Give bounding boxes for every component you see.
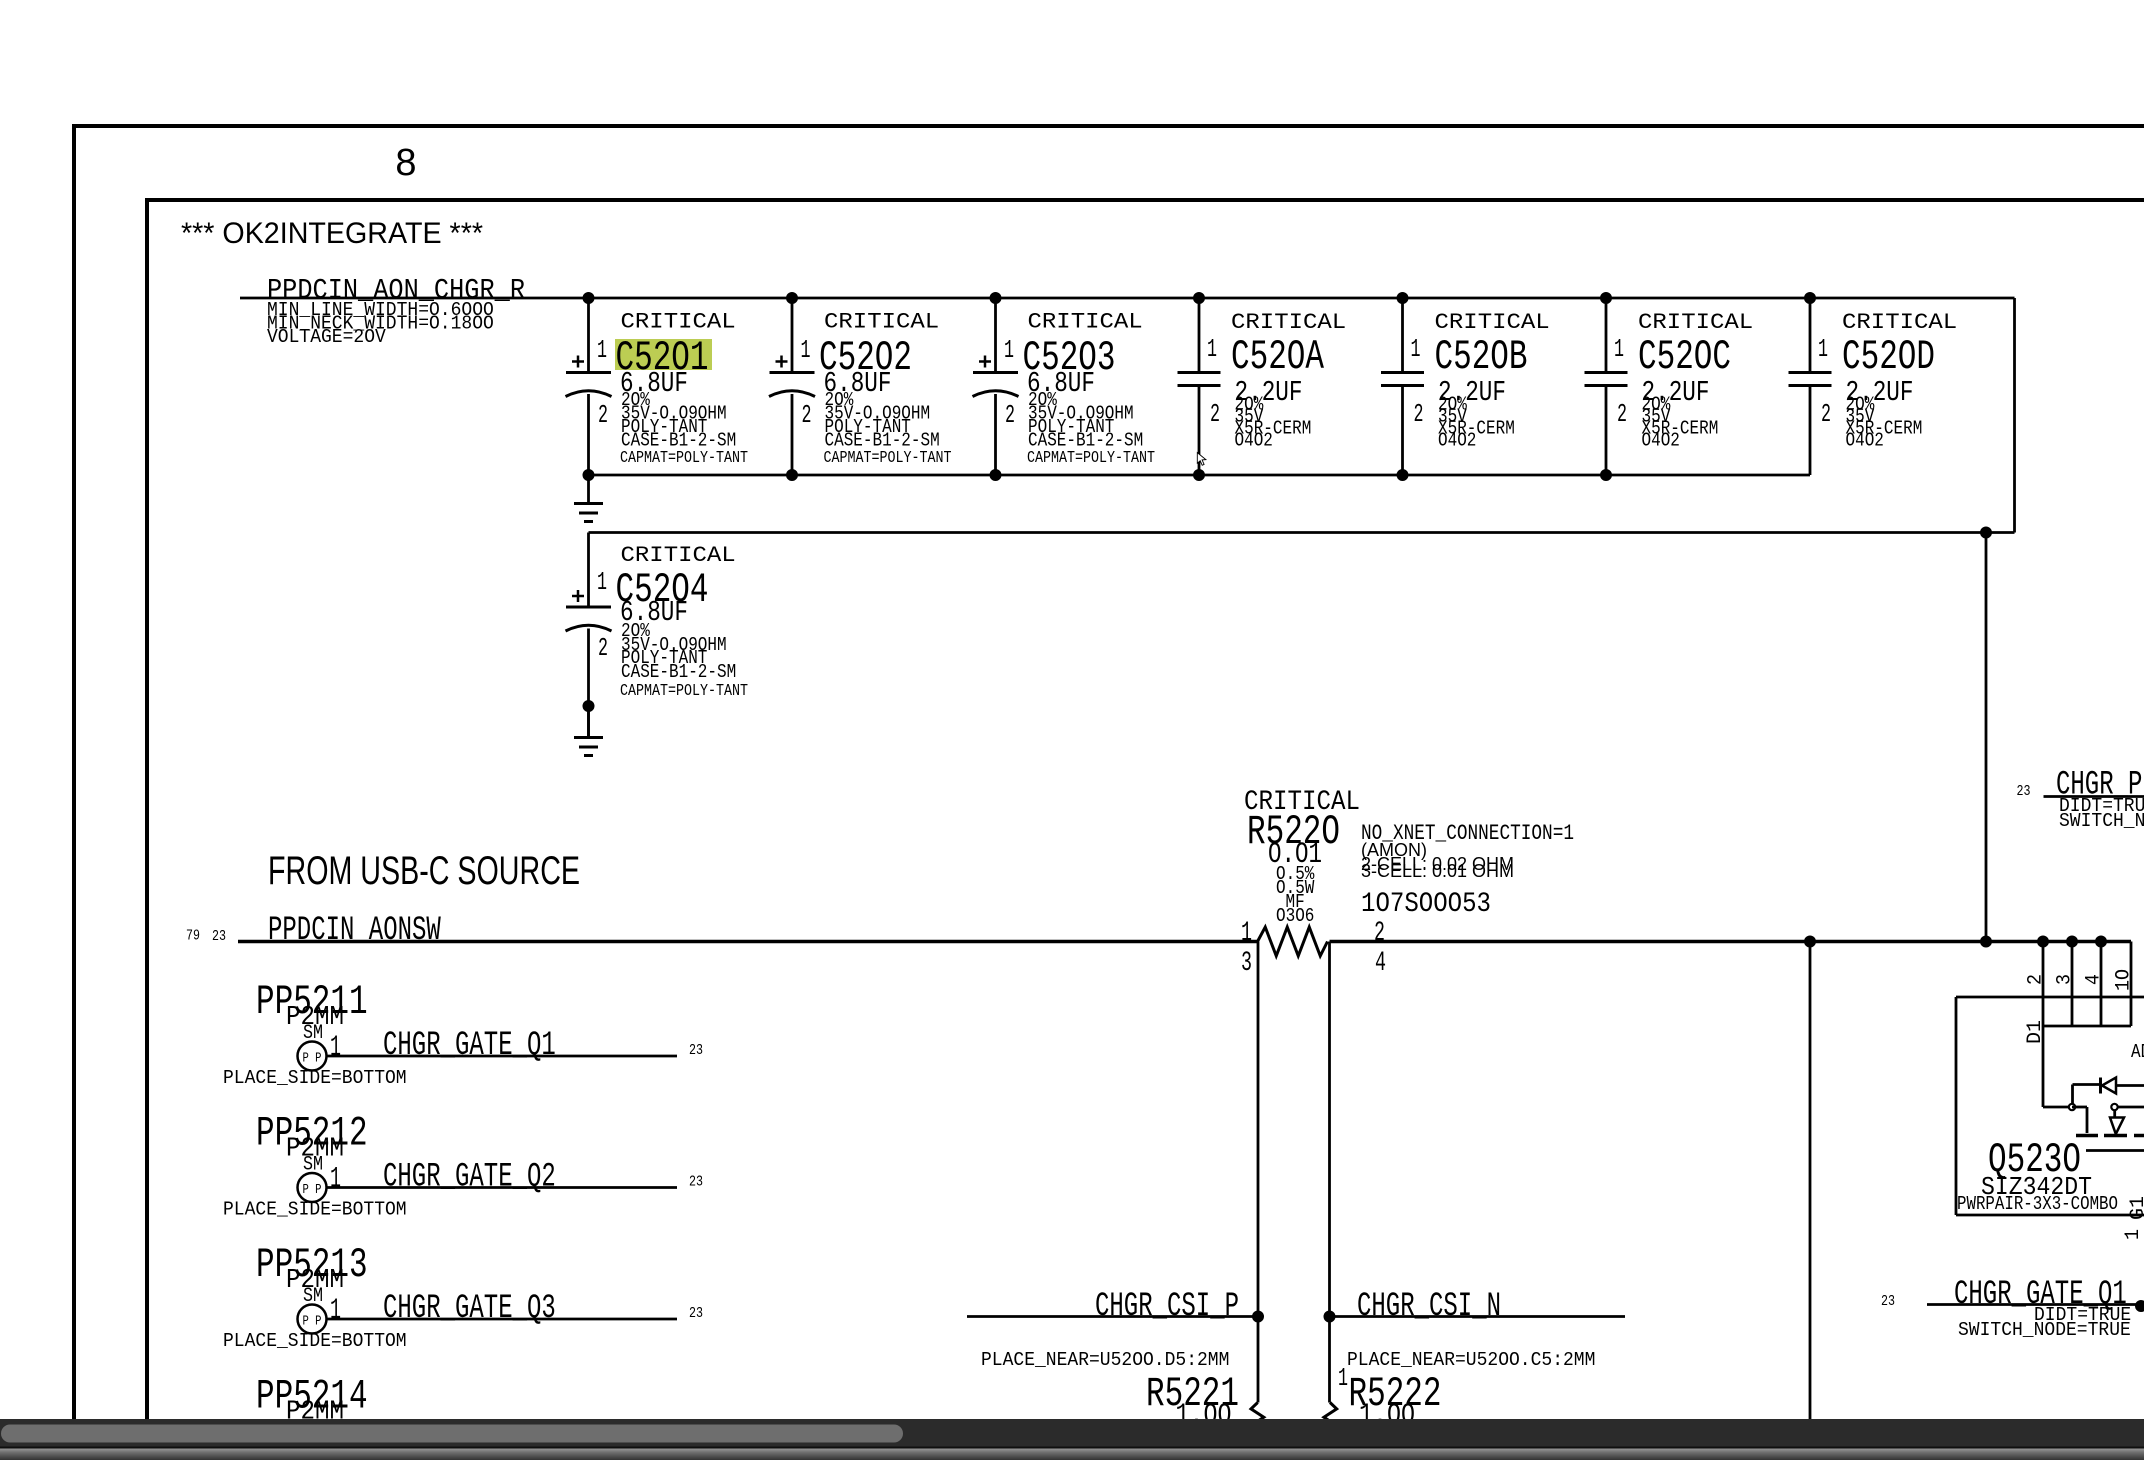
svg-text:CHGR_GATE_Q1: CHGR_GATE_Q1 [383, 1027, 556, 1065]
svg-text:PWRPAIR-3X3-COMBO: PWRPAIR-3X3-COMBO [1957, 1193, 2118, 1215]
svg-text:CHGR_GATE_Q3: CHGR_GATE_Q3 [383, 1290, 556, 1328]
svg-text:G1: G1 [2127, 1196, 2144, 1220]
svg-text:CRITICAL: CRITICAL [1638, 310, 1753, 335]
svg-text:PLACE_SIDE=BOTTOM: PLACE_SIDE=BOTTOM [223, 1067, 407, 1089]
svg-text:1: 1 [1818, 334, 1828, 364]
svg-text:1: 1 [1004, 335, 1014, 365]
svg-text:1: 1 [1241, 918, 1252, 949]
svg-text:2: 2 [598, 400, 608, 430]
svg-text:FROM USB-C SOURCE: FROM USB-C SOURCE [268, 849, 580, 893]
svg-text:23: 23 [212, 928, 226, 945]
svg-text:79: 79 [186, 928, 200, 945]
svg-text:2: 2 [1210, 399, 1220, 429]
svg-text:1: 1 [597, 335, 607, 365]
svg-text:P P: P P [303, 1051, 322, 1067]
svg-text:C52OA: C52OA [1231, 333, 1325, 381]
svg-text:CASE-B1-2-SM: CASE-B1-2-SM [621, 661, 736, 683]
svg-text:P P: P P [303, 1182, 322, 1198]
svg-text:4: 4 [1375, 948, 1386, 979]
svg-text:2: 2 [1617, 399, 1627, 429]
svg-text:SWITCH_NODE=TRUE: SWITCH_NODE=TRUE [1958, 1319, 2131, 1341]
svg-text:C52OD: C52OD [1842, 333, 1935, 381]
svg-text:PPDCIN_AONSW: PPDCIN_AONSW [268, 912, 441, 950]
svg-text:CHGR_CSI_P: CHGR_CSI_P [1095, 1288, 1239, 1326]
svg-text:3: 3 [1241, 948, 1252, 979]
svg-text:O4O2: O4O2 [1235, 430, 1273, 452]
svg-text:C52OB: C52OB [1435, 333, 1528, 381]
svg-text:2: 2 [1414, 399, 1424, 429]
svg-text:23: 23 [689, 1305, 703, 1322]
svg-text:CAPMAT=POLY-TANT: CAPMAT=POLY-TANT [620, 449, 748, 468]
svg-text:1: 1 [1207, 334, 1217, 364]
svg-text:CRITICAL: CRITICAL [1842, 310, 1957, 335]
svg-text:3: 3 [2054, 974, 2077, 985]
svg-text:CAPMAT=POLY-TANT: CAPMAT=POLY-TANT [620, 682, 748, 701]
svg-text:PLACE_SIDE=BOTTOM: PLACE_SIDE=BOTTOM [223, 1199, 407, 1221]
svg-text:CHGR_CSI_N: CHGR_CSI_N [1357, 1288, 1501, 1326]
svg-text:CRITICAL: CRITICAL [621, 310, 736, 335]
svg-text:CRITICAL: CRITICAL [621, 543, 736, 568]
svg-text:CRITICAL: CRITICAL [824, 310, 939, 335]
svg-text:CAPMAT=POLY-TANT: CAPMAT=POLY-TANT [1027, 449, 1155, 468]
svg-text:1: 1 [801, 335, 811, 365]
svg-text:23: 23 [1881, 1293, 1895, 1310]
svg-text:PLACE_SIDE=BOTTOM: PLACE_SIDE=BOTTOM [223, 1330, 407, 1352]
svg-text:2: 2 [2025, 974, 2048, 985]
svg-text:23: 23 [689, 1042, 703, 1059]
svg-text:SWITCH_NODE=TRUE: SWITCH_NODE=TRUE [2059, 810, 2144, 832]
svg-text:1: 1 [597, 567, 607, 597]
svg-text:23: 23 [689, 1174, 703, 1191]
svg-text:O4O2: O4O2 [1642, 430, 1680, 452]
svg-text:1: 1 [330, 1163, 341, 1197]
svg-text:2: 2 [1821, 399, 1831, 429]
svg-text:1: 1 [1411, 334, 1421, 364]
svg-text:23: 23 [2017, 783, 2031, 800]
svg-text:PLACE_NEAR=U52OO.C5:2MM: PLACE_NEAR=U52OO.C5:2MM [1347, 1349, 1595, 1371]
svg-text:1O7SOOO53: 1O7SOOO53 [1361, 889, 1491, 920]
svg-text:CRITICAL: CRITICAL [1231, 310, 1346, 335]
svg-text:CRITICAL: CRITICAL [1435, 310, 1550, 335]
svg-text:C52OC: C52OC [1638, 333, 1731, 381]
svg-text:1: 1 [330, 1031, 341, 1065]
svg-text:CHGR_GATE_Q2: CHGR_GATE_Q2 [383, 1159, 556, 1197]
svg-text:CAPMAT=POLY-TANT: CAPMAT=POLY-TANT [824, 449, 952, 468]
svg-text:VOLTAGE=2OV: VOLTAGE=2OV [267, 326, 386, 348]
svg-text:4: 4 [2083, 974, 2106, 985]
svg-text:3-CELL: 0.01 OHM: 3-CELL: 0.01 OHM [1361, 861, 1514, 881]
svg-text:1: 1 [330, 1294, 341, 1328]
svg-text:8: 8 [395, 142, 416, 184]
svg-text:CRITICAL: CRITICAL [1028, 310, 1143, 335]
svg-text:2: 2 [598, 633, 608, 663]
svg-text:2: 2 [802, 400, 812, 430]
svg-text:1O: 1O [2113, 969, 2136, 991]
svg-text:O4O2: O4O2 [1438, 430, 1476, 452]
svg-text:O3O6: O3O6 [1276, 905, 1314, 927]
svg-text:1: 1 [1614, 334, 1624, 364]
svg-text:PLACE_NEAR=U52OO.D5:2MM: PLACE_NEAR=U52OO.D5:2MM [981, 1349, 1229, 1371]
svg-text:2: 2 [1005, 400, 1015, 430]
svg-text:1: 1 [2122, 1229, 2144, 1240]
svg-text:AD: AD [2131, 1041, 2144, 1063]
svg-text:2: 2 [1374, 918, 1385, 949]
svg-text:P P: P P [303, 1314, 322, 1330]
svg-text:*** OK2INTEGRATE ***: *** OK2INTEGRATE *** [181, 217, 483, 250]
svg-text:O4O2: O4O2 [1846, 430, 1884, 452]
svg-text:1: 1 [1338, 1363, 1348, 1393]
